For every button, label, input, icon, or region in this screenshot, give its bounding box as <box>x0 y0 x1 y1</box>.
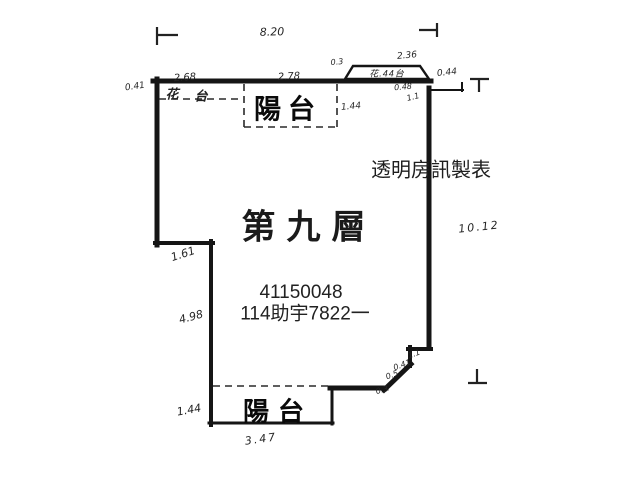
watermark-text: 透明房訊製表 <box>371 154 491 183</box>
balcony-bottom-label: 陽台 <box>243 392 313 429</box>
dim-balcony-top-depth: 1.44 <box>341 101 362 113</box>
planter-strip-label-char2: 台 <box>194 86 207 105</box>
dim-top-seg-left: 2.68 <box>174 72 197 85</box>
floor-title: 第九層 <box>242 200 377 249</box>
planter-strip-label-char1: 花 <box>165 84 178 103</box>
overlay-number-2: 114助宇7822一 <box>240 299 370 326</box>
dim-planter-end: 0.44 <box>437 67 458 79</box>
floor-plan-page: 第九層 41150048 114助宇7822一 透明房訊製表 陽台 陽台 花 台… <box>0 0 626 480</box>
dim-planter-width: 2.36 <box>397 50 418 62</box>
dim-top-width: 8.20 <box>260 25 285 39</box>
balcony-top-label: 陽台 <box>254 88 322 127</box>
dim-top-seg-mid: 2.78 <box>278 71 301 83</box>
dim-planter-left-offset: 0.3 <box>330 57 344 67</box>
planter-box-label: 花.44台 <box>369 67 405 80</box>
dim-notch-width: 0.48 <box>394 82 413 93</box>
